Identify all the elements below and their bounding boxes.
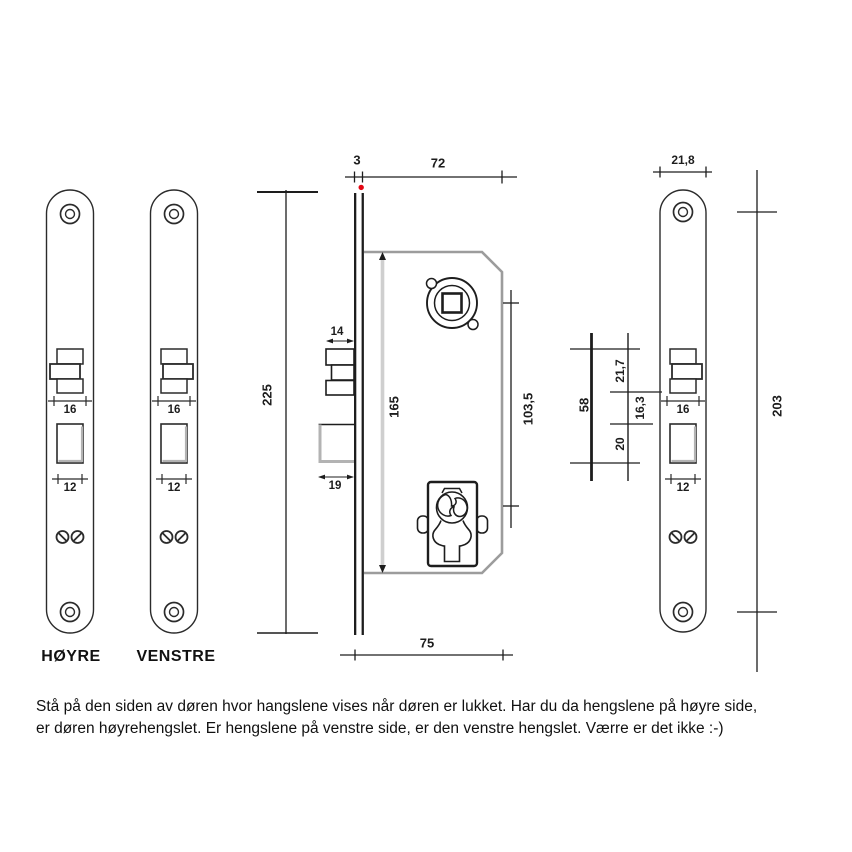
dim-label-bolt-height: 20 — [613, 437, 627, 450]
venstre-latch-cutout — [161, 349, 193, 393]
dim-3-72 — [345, 171, 517, 184]
hoyre-latch-cutout — [50, 349, 83, 393]
deadbolt-side-view — [319, 425, 355, 462]
cylinder-housing — [428, 482, 477, 566]
detail-latch-cutout — [670, 349, 702, 393]
dim-103-5 — [503, 290, 519, 528]
hoyre-latch-width-label: 16 — [64, 404, 77, 416]
venstre-plate-title: VENSTRE — [136, 648, 215, 666]
venstre-latch-width-label: 16 — [168, 404, 181, 416]
hoyre-bottom-screw-hole — [61, 603, 80, 622]
dim-label-latch-protrusion: 14 — [331, 326, 344, 338]
spindle-hub — [427, 278, 479, 330]
hoyre-top-screw-hole — [61, 205, 80, 224]
latch-bolt-side-view — [326, 349, 354, 395]
dim-label-spindle-to-cylinder: 103,5 — [521, 393, 536, 426]
venstre-bolt-cutout — [161, 424, 187, 463]
dim-label-detail-height: 203 — [770, 395, 785, 417]
dim-19 — [318, 475, 354, 480]
hoyre-mount-screws — [57, 531, 84, 543]
detail-bolt-cutout — [670, 424, 696, 463]
dim-203 — [737, 170, 777, 672]
hoyre-bolt-width-label: 12 — [64, 482, 77, 494]
detail-bottom-screw-hole — [674, 603, 693, 622]
dim-label-bolt-protrusion: 19 — [329, 480, 342, 492]
hoyre-plate-title: HØYRE — [41, 648, 100, 666]
venstre-bottom-screw-hole — [165, 603, 184, 622]
dim-label-faceplate-height: 225 — [260, 384, 275, 406]
dim-label-gap: 16,3 — [633, 396, 647, 419]
faceplate-edge-view — [354, 193, 364, 635]
dim-label-spacing-total: 58 — [577, 398, 592, 412]
dim-label-latch-height: 21,7 — [613, 359, 627, 382]
dim-label-body-height: 165 — [387, 396, 402, 418]
dim-label-faceplate-thickness: 3 — [353, 153, 360, 168]
venstre-bolt-width-label: 12 — [168, 482, 181, 494]
cylinder-assembly — [418, 482, 488, 566]
dim-165 — [379, 252, 386, 573]
detail-latch-width-label: 16 — [677, 404, 690, 416]
dim-label-body-depth: 75 — [420, 636, 434, 651]
footer-line-2: er døren høyrehengslet. Er hengslene på … — [36, 718, 836, 740]
venstre-mount-screws — [161, 531, 188, 543]
spindle-square-hole — [443, 294, 462, 313]
footer-note: Stå på den siden av døren hvor hangslene… — [36, 696, 836, 739]
detail-bolt-width-label: 12 — [677, 482, 690, 494]
dim-225 — [257, 190, 318, 634]
red-reference-dot — [359, 185, 364, 190]
dim-14 — [326, 339, 354, 344]
hoyre-bolt-cutout — [57, 424, 83, 463]
detail-mount-screws — [670, 531, 697, 543]
venstre-top-screw-hole — [165, 205, 184, 224]
dim-75 — [340, 650, 513, 661]
dim-label-total-depth: 72 — [431, 156, 445, 171]
technical-drawing-canvas: 3 72 225 165 103,5 14 19 75 58 21,7 16,3… — [0, 0, 852, 852]
dim-label-detail-width: 21,8 — [671, 153, 694, 167]
dim-21-8 — [653, 167, 712, 178]
footer-line-1: Stå på den siden av døren hvor hangslene… — [36, 696, 836, 718]
detail-top-screw-hole — [674, 203, 693, 222]
